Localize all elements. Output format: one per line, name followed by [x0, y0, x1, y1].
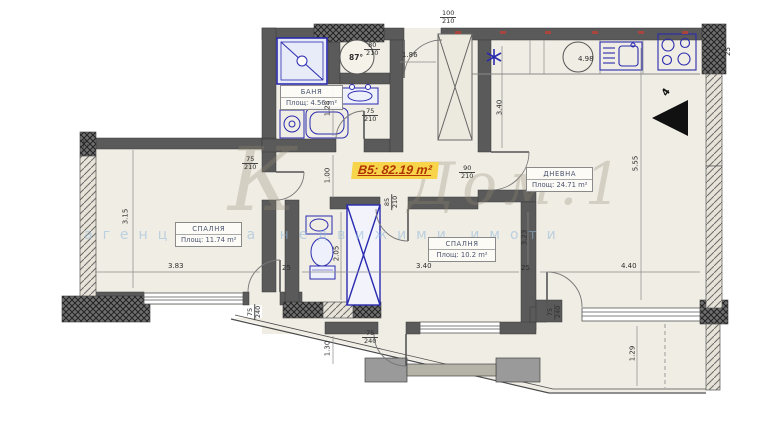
room-name: СПАЛНЯ [176, 223, 241, 235]
wardrobe-hall-icon [438, 34, 472, 140]
floor-plan-drawing: 87° [0, 0, 768, 425]
window-living [582, 308, 700, 321]
dim-wall-25-d: 25 [83, 139, 90, 148]
dim-hall-depth: 1.28 [324, 101, 331, 117]
dim-wc-width: 1.00 [324, 168, 331, 184]
room-label-bedroom2: СПАЛНЯ Площ: 10.2 m² [428, 237, 496, 262]
dim-living-height: 5.55 [632, 156, 639, 172]
dim-wall-25-b: 25 [521, 265, 530, 272]
room-name: БАНЯ [281, 86, 342, 98]
dim-bedroom2-height: 3.23 [521, 230, 528, 246]
room-label-living: ДНЕВНА Площ: 24.71 m² [526, 167, 593, 192]
door-size-balcony-left: 75240 [247, 304, 263, 320]
dim-balcony-left-depth: 1.30 [324, 341, 331, 357]
room-area: Площ: 10.2 m² [429, 250, 495, 261]
dim-bedroom1-width: 3.83 [168, 263, 184, 270]
door-size-wc: 80210 [364, 42, 380, 58]
dim-bedroom1-height: 3.15 [122, 209, 129, 225]
door-size-balcony-mid: 75240 [362, 330, 378, 346]
room-name: ДНЕВНА [527, 168, 592, 180]
dim-wall-25-c: 25 [725, 47, 732, 56]
door-size-entrance: 100210 [440, 10, 456, 26]
wardrobe-corridor-icon [347, 205, 380, 305]
door-size-bedroom1: 75210 [242, 156, 258, 172]
dim-wall-25-a: 25 [282, 265, 291, 272]
dim-kitchen-run: 4.98 [578, 56, 594, 63]
room-area: Площ: 24.71 m² [527, 180, 592, 191]
toilet-icon [310, 238, 335, 279]
unit-area-label: B5: 82.19 m² [351, 162, 438, 179]
dim-bedroom2-width: 3.40 [416, 263, 432, 270]
room-area: Площ: 4.56 m² [281, 98, 342, 109]
door-size-bath: 75210 [362, 108, 378, 124]
room-area: Площ: 11.74 m² [176, 235, 241, 246]
shower-icon [277, 38, 327, 84]
floor-plan: 87° [0, 0, 768, 425]
dim-hall-height: 3.40 [496, 100, 503, 116]
dim-wc-depth: 2.05 [333, 246, 340, 262]
door-size-bedroom2: 85210 [384, 194, 400, 210]
dim-entry-width: 1.86 [402, 52, 418, 59]
dim-living-width: 4.40 [621, 263, 637, 270]
boiler-angle-label: 87° [349, 53, 363, 62]
window-bedroom1 [144, 293, 243, 304]
dim-balcony-right-depth: 1.29 [629, 346, 636, 362]
room-label-bedroom1: СПАЛНЯ Площ: 11.74 m² [175, 222, 242, 247]
door-size-living: 90210 [459, 165, 475, 181]
door-size-balcony-right: 75240 [547, 304, 563, 320]
room-name: СПАЛНЯ [429, 238, 495, 250]
room-label-bath: БАНЯ Площ: 4.56 m² [280, 85, 343, 110]
window-bedroom2 [420, 322, 500, 333]
